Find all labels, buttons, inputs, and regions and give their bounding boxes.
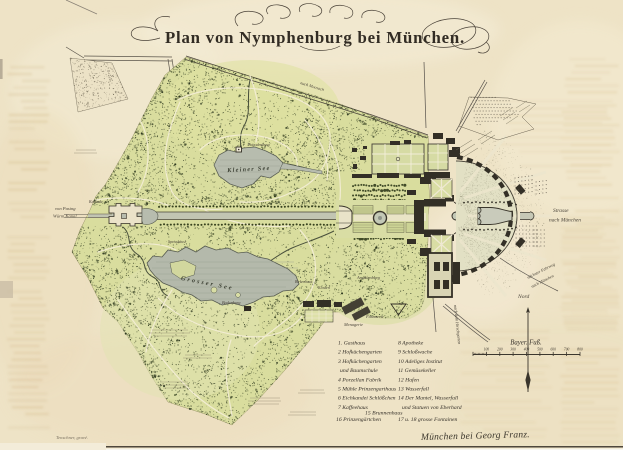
svg-text:12 Hafen: 12 Hafen bbox=[398, 376, 419, 383]
svg-text:und Baumschule: und Baumschule bbox=[340, 368, 378, 374]
svg-text:11 Gemüsekeller: 11 Gemüsekeller bbox=[398, 368, 437, 374]
svg-text:4 Porzellan Fabrik: 4 Porzellan Fabrik bbox=[338, 377, 382, 383]
svg-text:700: 700 bbox=[564, 347, 570, 351]
svg-text:und Statuen von Eberhard: und Statuen von Eberhard bbox=[402, 405, 462, 411]
svg-text:9 Schloßwache: 9 Schloßwache bbox=[398, 349, 433, 356]
svg-text:Badenburg: Badenburg bbox=[222, 300, 240, 305]
svg-text:Bayer. Fuß.: Bayer. Fuß. bbox=[510, 340, 542, 347]
svg-text:Nord: Nord bbox=[517, 294, 529, 300]
svg-text:13 Wasserfall: 13 Wasserfall bbox=[398, 386, 429, 393]
svg-text:400: 400 bbox=[524, 347, 530, 351]
svg-text:Menagerie: Menagerie bbox=[343, 322, 363, 327]
svg-text:Fasanerie: Fasanerie bbox=[365, 314, 384, 319]
svg-text:Pagodenburg: Pagodenburg bbox=[247, 142, 270, 147]
svg-text:5 Mühle Prinzengarthaus: 5 Mühle Prinzengarthaus bbox=[338, 387, 397, 393]
svg-text:17 u. 18 grosse Fontainen: 17 u. 18 grosse Fontainen bbox=[398, 417, 458, 423]
svg-text:Speisshäusl: Speisshäusl bbox=[168, 240, 186, 244]
svg-text:3 Hofküchengarten: 3 Hofküchengarten bbox=[337, 358, 382, 365]
svg-text:Plan von Nymphenburg bei Münch: Plan von Nymphenburg bei München. bbox=[165, 28, 465, 47]
svg-text:800: 800 bbox=[577, 347, 583, 351]
svg-text:100: 100 bbox=[484, 347, 490, 351]
svg-text:Klosterl: Klosterl bbox=[317, 286, 330, 290]
svg-text:500: 500 bbox=[537, 347, 543, 351]
svg-text:1. Gasthaus: 1. Gasthaus bbox=[338, 341, 366, 347]
svg-text:von Pasing: von Pasing bbox=[55, 206, 76, 211]
svg-text:15 Brunnenhaus: 15 Brunnenhaus bbox=[365, 411, 403, 417]
svg-text:200: 200 bbox=[497, 347, 503, 351]
svg-text:nach München: nach München bbox=[549, 218, 581, 224]
svg-text:Würm Kanal: Würm Kanal bbox=[53, 214, 77, 219]
svg-text:600: 600 bbox=[551, 347, 557, 351]
svg-text:8 Apotheke: 8 Apotheke bbox=[398, 341, 424, 347]
svg-text:10 Adeliges Institut: 10 Adeliges Institut bbox=[398, 359, 443, 365]
svg-text:2 Hofküchengarten: 2 Hofküchengarten bbox=[338, 349, 382, 356]
svg-text:Amalienburg: Amalienburg bbox=[356, 275, 381, 280]
svg-text:16 Prinzengärtchen: 16 Prinzengärtchen bbox=[336, 417, 381, 423]
svg-text:Kaskade: Kaskade bbox=[88, 199, 103, 204]
svg-text:Birkenhaus: Birkenhaus bbox=[295, 280, 313, 284]
svg-text:Strasse: Strasse bbox=[553, 208, 569, 214]
svg-text:300: 300 bbox=[510, 347, 516, 351]
svg-text:14 Der Mantel, Wasserfall: 14 Der Mantel, Wasserfall bbox=[398, 395, 459, 402]
svg-text:6 Eichkandei Schlößchen: 6 Eichkandei Schlößchen bbox=[338, 395, 396, 402]
